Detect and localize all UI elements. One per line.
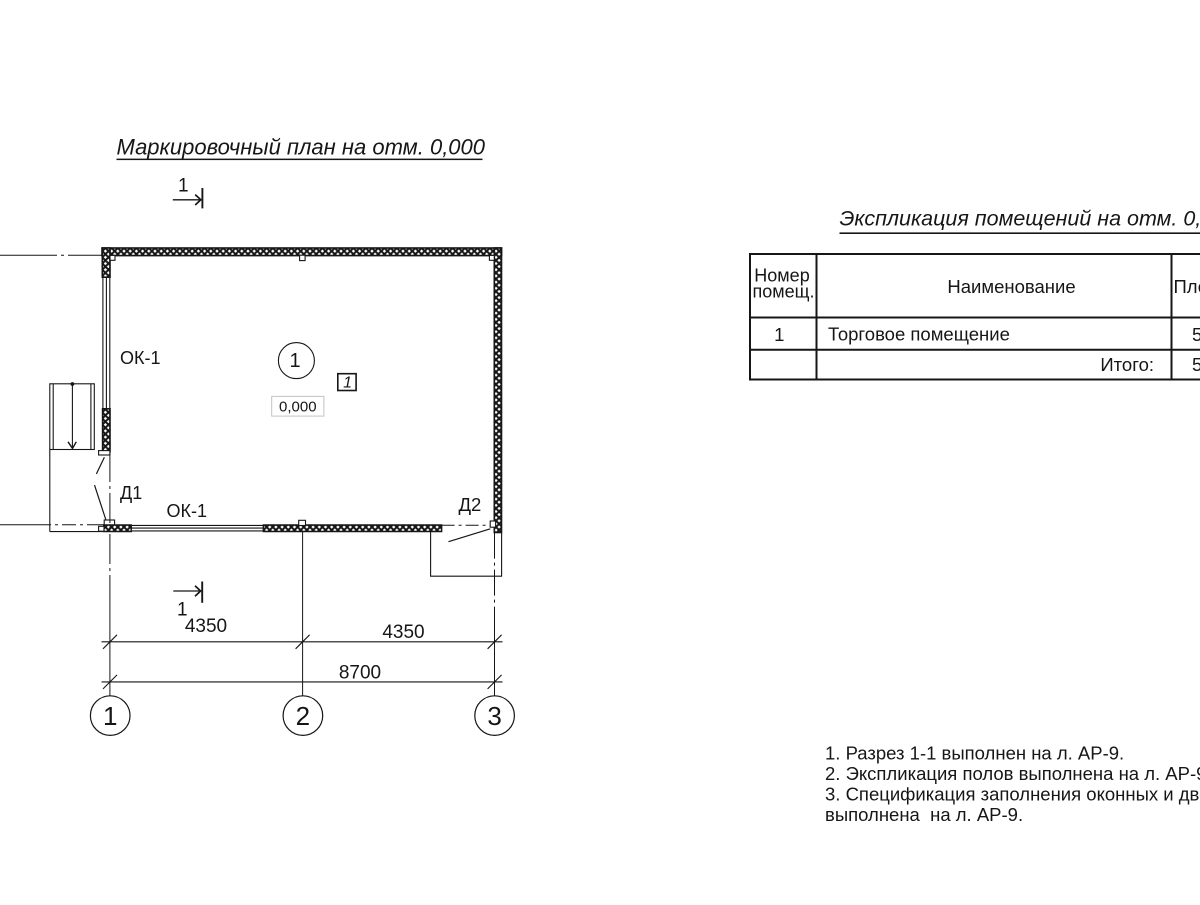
- svg-text:1: 1: [774, 324, 784, 345]
- svg-text:57,8: 57,8: [1192, 324, 1200, 345]
- svg-text:1. Разрез 1-1 выполнен на л. А: 1. Разрез 1-1 выполнен на л. АР-9.: [825, 743, 1124, 764]
- svg-text:Д2: Д2: [459, 494, 482, 515]
- svg-text:0,000: 0,000: [279, 399, 317, 416]
- svg-text:помещ.: помещ.: [753, 282, 815, 302]
- svg-text:ОК-1: ОК-1: [167, 501, 208, 521]
- svg-text:2: 2: [296, 701, 310, 731]
- svg-text:2. Экспликация полов выполнена: 2. Экспликация полов выполнена на л. АР-…: [825, 763, 1200, 784]
- svg-text:3: 3: [487, 701, 501, 731]
- svg-text:1: 1: [177, 600, 188, 621]
- svg-text:ОК-1: ОК-1: [120, 348, 161, 368]
- svg-text:4350: 4350: [185, 616, 227, 637]
- svg-text:Площадь, м: Площадь, м: [1174, 276, 1200, 297]
- svg-text:1: 1: [289, 350, 300, 372]
- svg-text:4350: 4350: [382, 622, 424, 643]
- svg-text:Экспликация помещений на отм.: Экспликация помещений на отм. 0,000: [840, 206, 1200, 230]
- svg-text:выполнена на л. АР-9.: выполнена на л. АР-9.: [825, 804, 1023, 825]
- svg-text:Наименование: Наименование: [947, 276, 1075, 297]
- svg-text:1: 1: [103, 701, 117, 731]
- svg-text:8700: 8700: [339, 663, 381, 684]
- svg-text:57,8: 57,8: [1192, 354, 1200, 375]
- svg-text:1: 1: [178, 176, 189, 197]
- svg-text:Итого:: Итого:: [1100, 354, 1154, 375]
- svg-text:Маркировочный план на отм. 0,0: Маркировочный план на отм. 0,000: [117, 134, 486, 159]
- svg-text:Торговое помещение: Торговое помещение: [828, 324, 1010, 345]
- svg-text:Д1: Д1: [120, 483, 142, 503]
- svg-text:3. Спецификация заполнения око: 3. Спецификация заполнения оконных и две…: [825, 784, 1200, 805]
- svg-text:1: 1: [343, 375, 352, 392]
